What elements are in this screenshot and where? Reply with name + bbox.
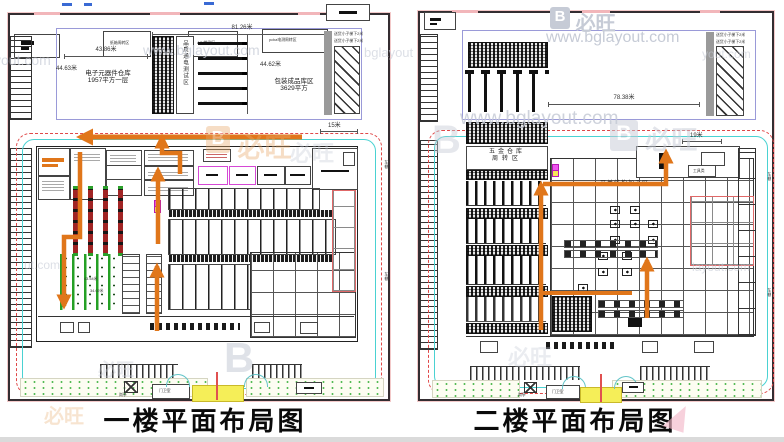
label-box bbox=[144, 166, 194, 180]
machine bbox=[598, 268, 608, 276]
qc-room bbox=[198, 166, 228, 185]
table bbox=[321, 170, 349, 172]
dim-line bbox=[64, 56, 148, 57]
floor1-plan: 纸箱周转区 AOI检测区 pcba电测周转区 81.26米 43.86米 44.… bbox=[0, 0, 392, 442]
parking-row bbox=[640, 366, 710, 380]
machine-row bbox=[466, 219, 546, 244]
landscape-strip bbox=[432, 380, 520, 398]
machine-row bbox=[466, 256, 546, 285]
dense-storage bbox=[552, 296, 592, 332]
divider bbox=[107, 179, 141, 180]
cabinet bbox=[701, 152, 725, 166]
table bbox=[236, 174, 248, 176]
warehouse2-label: 包装成品库区 3629平方 bbox=[256, 78, 332, 93]
hall-room bbox=[38, 148, 70, 176]
wall-accent bbox=[700, 10, 720, 13]
rack-shelving bbox=[466, 245, 548, 256]
dim-height2: 44.62米 bbox=[260, 62, 281, 69]
machine-row bbox=[466, 297, 546, 322]
corridor-strip bbox=[706, 32, 714, 116]
main-gate bbox=[192, 385, 244, 402]
conveyor bbox=[198, 87, 247, 90]
conveyor bbox=[198, 102, 247, 105]
roof-box bbox=[326, 4, 370, 21]
rack-shelving bbox=[466, 208, 548, 219]
equipment bbox=[254, 322, 270, 333]
hw-store-line2: 周转区 bbox=[467, 156, 547, 163]
tools-label: 工具类 bbox=[693, 168, 705, 174]
ramp-hatch bbox=[334, 46, 360, 114]
smt-line bbox=[118, 186, 123, 256]
lift-note: 送货小子梯下2米 bbox=[334, 31, 363, 37]
warehouse2-line2: 3629平方 bbox=[256, 85, 332, 92]
hall-room bbox=[38, 176, 70, 200]
micro-text bbox=[42, 181, 64, 191]
seat-row bbox=[150, 323, 240, 330]
pallet-column bbox=[146, 254, 162, 314]
ramp-hatch bbox=[716, 46, 744, 116]
lift-note: 送货小子梯下2米 bbox=[716, 39, 745, 45]
title-block bbox=[424, 12, 456, 30]
dim-total: 81.26米 bbox=[152, 25, 332, 32]
lift-note: 送货小子梯下2米 bbox=[334, 38, 363, 44]
hall-corridor bbox=[38, 316, 354, 339]
rack-shelving bbox=[152, 36, 174, 114]
parking-strip bbox=[420, 34, 438, 122]
guard-booth bbox=[524, 382, 537, 393]
wave-solder-lines bbox=[60, 254, 118, 310]
right-rooms bbox=[738, 148, 756, 336]
guard-label: 岗亭 bbox=[518, 392, 526, 398]
divider bbox=[107, 165, 141, 166]
hw-store-box: 五金仓库 周转区 bbox=[466, 146, 548, 170]
guard-booth2 bbox=[296, 382, 322, 394]
workbench-row bbox=[564, 240, 658, 248]
line-caps bbox=[465, 70, 549, 74]
title-glyph bbox=[430, 18, 441, 21]
flow-marker-yellow bbox=[154, 206, 161, 213]
equipment bbox=[659, 153, 667, 169]
machine bbox=[630, 220, 640, 228]
dim-line bbox=[682, 141, 722, 142]
hall-room bbox=[285, 166, 311, 185]
guard-booth2 bbox=[622, 382, 644, 393]
hall-corridor bbox=[466, 336, 754, 357]
wall-accent bbox=[582, 10, 610, 13]
machine bbox=[630, 206, 640, 214]
dim-line bbox=[320, 131, 358, 132]
dim-width: 43.86米 bbox=[64, 47, 148, 54]
guard-label: 岗亭 bbox=[119, 392, 127, 398]
cabinet bbox=[343, 152, 355, 166]
machine bbox=[648, 220, 658, 228]
conveyor bbox=[198, 57, 247, 60]
table bbox=[206, 174, 218, 176]
conveyor-band bbox=[168, 210, 334, 217]
dim-total: 78.38米 bbox=[548, 95, 700, 102]
machine bbox=[610, 206, 620, 214]
qc-room bbox=[229, 166, 256, 185]
smt-line bbox=[103, 186, 108, 256]
room-divider bbox=[247, 34, 248, 114]
machine bbox=[578, 284, 588, 292]
equipment bbox=[60, 322, 74, 333]
rack-shelving bbox=[466, 286, 548, 297]
dim-line-a: 43.54米 bbox=[84, 276, 97, 282]
equipment bbox=[480, 341, 498, 353]
wall-marker bbox=[84, 3, 92, 6]
rack-shelving bbox=[466, 122, 548, 144]
arrow-base-block bbox=[628, 318, 642, 327]
wall-accent bbox=[150, 12, 180, 15]
dim-line-b: 34.02米 bbox=[90, 288, 103, 294]
equipment bbox=[300, 322, 318, 334]
machine-row bbox=[466, 181, 546, 206]
corridor-strip bbox=[324, 31, 332, 115]
workbench-row bbox=[564, 250, 658, 258]
title-glyph bbox=[430, 23, 437, 25]
label-box bbox=[144, 150, 194, 166]
wall-marker bbox=[204, 2, 214, 5]
parking-row bbox=[470, 366, 580, 380]
label-stack bbox=[106, 150, 142, 196]
table bbox=[264, 174, 277, 176]
assembly-band bbox=[168, 219, 336, 255]
equipment bbox=[694, 341, 714, 353]
hw-store-line1: 五金仓库 bbox=[467, 149, 547, 156]
dim-line bbox=[548, 104, 700, 105]
tools-label-box: 工具类 bbox=[688, 165, 716, 177]
micro-text bbox=[148, 170, 188, 176]
floor2-plan: 78.38米 送货小子梯下2米 送货小子梯下2米 19米 五金仓库 周转区 bbox=[392, 0, 784, 442]
equipment-bar bbox=[42, 164, 58, 167]
parking-strip bbox=[10, 36, 32, 120]
rack-shelving bbox=[468, 42, 548, 68]
seat-row bbox=[546, 342, 616, 349]
conveyor bbox=[198, 42, 247, 45]
micro-text bbox=[206, 152, 227, 158]
conveyor-lines bbox=[198, 40, 246, 112]
table bbox=[290, 174, 305, 176]
micro-text bbox=[110, 154, 136, 162]
test-zone-label: 品质通电测试区 bbox=[181, 40, 189, 86]
floor1-caption: 一楼平面布局图 bbox=[92, 401, 318, 438]
dim-road: 19米 bbox=[690, 133, 703, 140]
dim-road: 15米 bbox=[328, 123, 341, 130]
workbench-row bbox=[598, 310, 684, 318]
smt-line bbox=[73, 186, 78, 256]
conveyor bbox=[198, 72, 247, 75]
gate-axis bbox=[216, 372, 218, 400]
zone-label: 开关结构加工区 bbox=[600, 181, 649, 188]
equipment bbox=[78, 322, 90, 333]
machine bbox=[610, 220, 620, 228]
vertical-lines bbox=[468, 70, 546, 112]
edge-label: 车棚 bbox=[383, 160, 389, 169]
wall-marker bbox=[62, 3, 72, 6]
edge-label: 车棚 bbox=[383, 272, 389, 281]
hall-room bbox=[257, 166, 285, 185]
roof-glyph bbox=[339, 11, 357, 14]
equipment-bar bbox=[42, 158, 64, 162]
micro-text bbox=[74, 153, 100, 161]
fire-label bbox=[203, 149, 231, 162]
dim-line bbox=[152, 34, 332, 35]
equipment bbox=[642, 341, 658, 353]
gate-room-label: 门卫室 bbox=[159, 388, 171, 394]
bottom-bar bbox=[0, 437, 784, 442]
micro-text bbox=[148, 154, 188, 161]
factory-layout-screenshot: 纸箱周转区 AOI检测区 pcba电测周转区 81.26米 43.86米 44.… bbox=[0, 0, 784, 442]
smt-line bbox=[88, 186, 93, 256]
warehouse1-label: 电子元器件仓库 1957平方一层 bbox=[70, 70, 146, 85]
edge-label: 车棚 bbox=[766, 288, 772, 297]
test-zone-box: 品质通电测试区 bbox=[176, 36, 194, 114]
edge-label: 车棚 bbox=[766, 172, 772, 181]
red-zone-grid bbox=[332, 190, 356, 292]
gate-room-label: 门卫室 bbox=[552, 389, 564, 395]
rack-shelving bbox=[466, 170, 548, 180]
wall-accent bbox=[298, 12, 320, 15]
lift-note: 送货小子梯下2米 bbox=[716, 32, 745, 38]
assembly-band bbox=[168, 188, 320, 210]
rack-shelving bbox=[466, 323, 548, 334]
floor2-caption: 二楼平面布局图 bbox=[470, 401, 680, 438]
pallet-column bbox=[122, 254, 140, 314]
table bbox=[629, 386, 638, 388]
warehouse1-line2: 1957平方一层 bbox=[70, 77, 146, 84]
wall-accent bbox=[34, 12, 60, 15]
hall-room bbox=[312, 148, 358, 190]
workbench-row bbox=[598, 300, 684, 308]
assembly-band bbox=[168, 264, 252, 310]
parking-row bbox=[100, 364, 178, 378]
gate-axis bbox=[600, 374, 602, 402]
table bbox=[304, 387, 314, 389]
machine bbox=[622, 268, 632, 276]
